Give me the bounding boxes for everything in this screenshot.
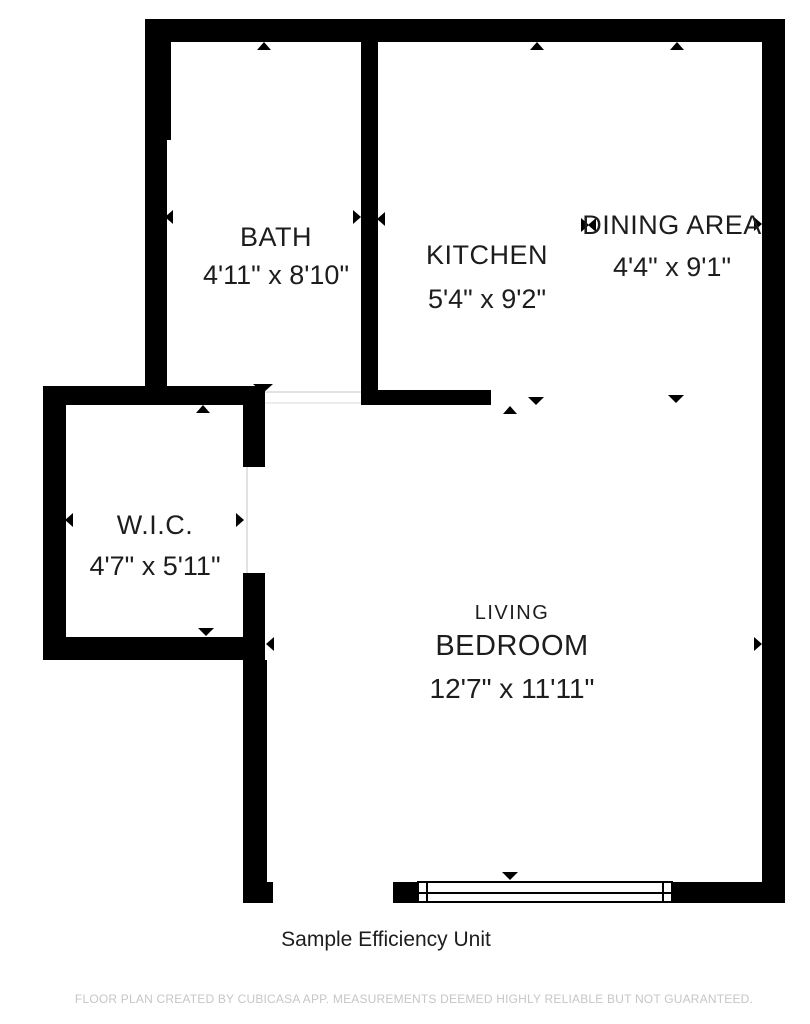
marker-bedroom-bottom-icon — [502, 872, 518, 880]
wall-wic-right-lower — [243, 573, 265, 660]
window-jamb-right — [662, 883, 664, 901]
bath-door-opening-bottom-line — [265, 402, 361, 404]
wic-door-opening-line — [246, 467, 248, 573]
marker-bedroom-right-icon — [754, 637, 762, 651]
marker-bedroom-top-icon — [503, 406, 517, 414]
wic-name: W.I.C. — [89, 510, 220, 540]
wall-right — [762, 19, 785, 903]
marker-bedroom-left-icon — [266, 637, 274, 651]
room-label-living-bedroom: LIVING BEDROOM 12'7" x 11'11" — [430, 602, 595, 704]
marker-dining-bottom-icon — [668, 395, 684, 403]
room-label-kitchen: KITCHEN 5'4" x 9'2" — [426, 240, 548, 314]
plan-disclaimer: FLOOR PLAN CREATED BY CUBICASA APP. MEAS… — [75, 992, 753, 1006]
marker-bath-left-icon — [165, 210, 173, 224]
room-label-dining-area: DINING AREA 4'4" x 9'1" — [582, 210, 762, 282]
marker-kitchen-bottom-icon — [528, 397, 544, 405]
marker-wic-bottom-icon — [198, 628, 214, 636]
floor-plan-page: BATH 4'11" x 8'10" KITCHEN 5'4" x 9'2" D… — [0, 0, 810, 1024]
window-midline — [419, 892, 671, 894]
marker-kitchen-top-icon — [530, 42, 544, 50]
wall-top — [145, 19, 785, 42]
marker-bath-door-icon — [253, 384, 273, 393]
bath-dimensions: 4'11" x 8'10" — [203, 260, 349, 290]
marker-wic-left-icon — [65, 513, 73, 527]
wall-wic-right-upper — [243, 386, 265, 467]
plan-caption: Sample Efficiency Unit — [281, 928, 491, 952]
window — [417, 881, 673, 903]
wall-bottom-right — [673, 882, 785, 903]
wall-bedroom-left-column — [243, 660, 267, 903]
wall-left-lower — [145, 140, 167, 405]
wall-kitchen-bottom — [378, 390, 491, 405]
living-bedroom-dimensions: 12'7" x 11'11" — [430, 673, 595, 704]
bath-door-opening-top-line — [265, 391, 361, 393]
wall-left-upper — [145, 19, 171, 140]
wall-wic-bottom — [43, 637, 265, 660]
marker-bath-top-icon — [257, 42, 271, 50]
marker-wic-right-icon — [236, 513, 244, 527]
wall-wic-top-bath-bottom — [43, 386, 265, 405]
window-jamb-left — [426, 883, 428, 901]
marker-bath-right-icon — [353, 210, 361, 224]
wall-bath-kitchen-divider — [361, 42, 378, 405]
wall-bottom-left-post — [393, 882, 417, 903]
kitchen-name: KITCHEN — [426, 240, 548, 270]
room-label-bath: BATH 4'11" x 8'10" — [203, 222, 349, 290]
living-bedroom-name-line2: BEDROOM — [430, 630, 595, 662]
bath-name: BATH — [203, 222, 349, 252]
living-bedroom-name-line1: LIVING — [430, 602, 595, 624]
dining-area-name: DINING AREA — [582, 210, 762, 240]
wic-dimensions: 4'7" x 5'11" — [89, 551, 220, 581]
marker-kitchen-left-icon — [377, 212, 385, 226]
marker-wic-top-icon — [196, 405, 210, 413]
wall-wic-left — [43, 386, 66, 660]
marker-dining-top-icon — [670, 42, 684, 50]
wall-bedroom-left-notch — [267, 882, 273, 903]
dining-area-dimensions: 4'4" x 9'1" — [582, 252, 762, 282]
room-label-wic: W.I.C. 4'7" x 5'11" — [89, 510, 220, 581]
kitchen-dimensions: 5'4" x 9'2" — [426, 284, 548, 314]
